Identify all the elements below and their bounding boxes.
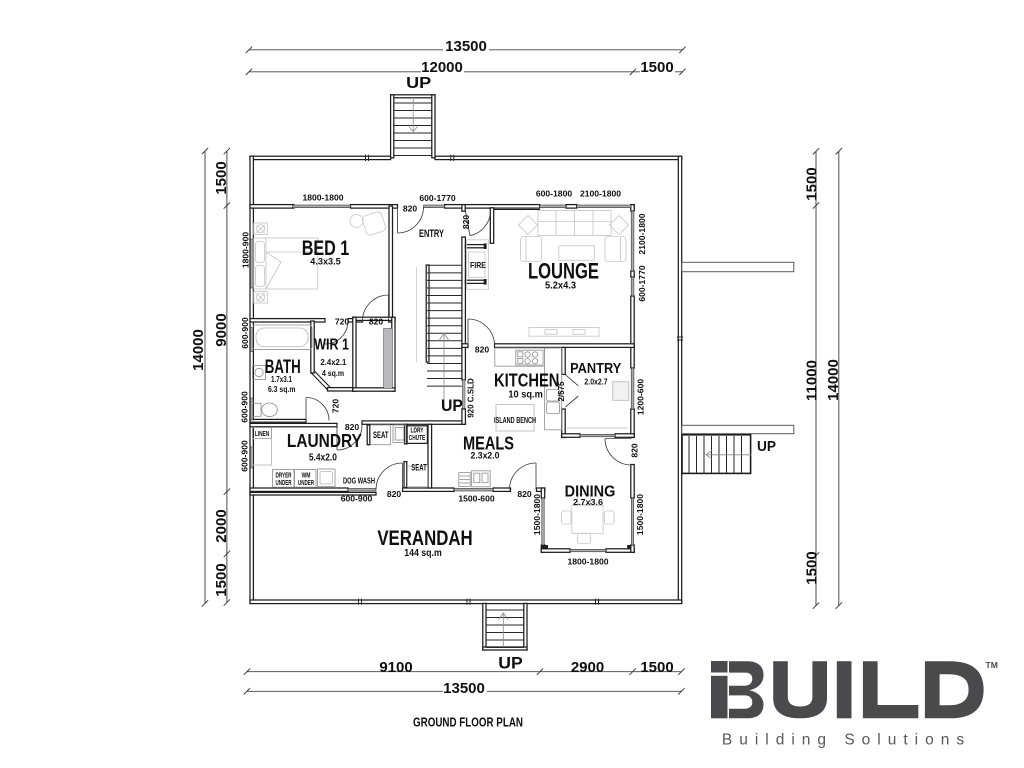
svg-text:1500: 1500: [213, 563, 230, 596]
svg-text:600-900: 600-900: [240, 317, 250, 349]
svg-text:11000: 11000: [804, 360, 821, 401]
svg-text:Building Solutions: Building Solutions: [722, 732, 971, 749]
svg-text:PANTRY: PANTRY: [570, 361, 621, 377]
svg-text:KITCHEN: KITCHEN: [494, 370, 559, 391]
svg-text:ENTRY: ENTRY: [419, 228, 444, 240]
svg-text:820: 820: [475, 345, 490, 355]
svg-text:820: 820: [403, 204, 418, 214]
svg-text:FIRE: FIRE: [470, 260, 486, 270]
svg-text:UP: UP: [498, 655, 523, 673]
svg-text:600-900: 600-900: [240, 391, 250, 423]
svg-text:LDRY: LDRY: [411, 428, 424, 435]
svg-text:1.7x3.1: 1.7x3.1: [271, 374, 292, 384]
svg-text:2.4x2.1: 2.4x2.1: [320, 357, 346, 367]
svg-text:13500: 13500: [443, 680, 485, 697]
svg-text:SEAT: SEAT: [373, 430, 389, 440]
svg-text:VERANDAH: VERANDAH: [377, 526, 472, 550]
svg-text:1500: 1500: [213, 161, 230, 194]
svg-text:CHUTE: CHUTE: [409, 435, 426, 442]
svg-text:2100-1800: 2100-1800: [580, 189, 621, 199]
svg-text:14000: 14000: [190, 329, 207, 371]
svg-text:6.3 sq.m: 6.3 sq.m: [268, 384, 296, 394]
svg-text:2100-1800: 2100-1800: [637, 213, 647, 254]
svg-text:144 sq.m: 144 sq.m: [404, 548, 442, 559]
svg-text:600-1800: 600-1800: [536, 189, 573, 199]
svg-text:1500-600: 1500-600: [458, 494, 495, 504]
svg-text:LAUNDRY: LAUNDRY: [287, 431, 362, 451]
svg-text:1500: 1500: [804, 167, 821, 200]
svg-text:600-1770: 600-1770: [419, 193, 456, 203]
svg-text:5.4x2.0: 5.4x2.0: [309, 453, 337, 464]
svg-text:1500-1800: 1500-1800: [635, 494, 645, 535]
svg-text:WM: WM: [302, 473, 311, 480]
svg-text:820: 820: [387, 489, 402, 499]
svg-text:1800-1800: 1800-1800: [567, 557, 608, 567]
svg-text:1800-900: 1800-900: [241, 232, 251, 269]
svg-text:SEAT: SEAT: [411, 463, 427, 473]
svg-text:820: 820: [630, 443, 640, 458]
svg-text:600-900: 600-900: [240, 440, 250, 472]
svg-text:1500-1800: 1500-1800: [532, 494, 542, 535]
svg-text:1500: 1500: [640, 659, 673, 676]
svg-text:1800-1800: 1800-1800: [302, 193, 343, 203]
svg-text:TM: TM: [986, 660, 998, 670]
svg-text:9100: 9100: [379, 659, 412, 676]
svg-text:1200-600: 1200-600: [636, 379, 646, 416]
svg-text:DRYER: DRYER: [276, 473, 292, 480]
svg-text:4.3x3.5: 4.3x3.5: [310, 257, 341, 268]
svg-text:2000: 2000: [213, 509, 230, 542]
svg-text:UNDER: UNDER: [298, 480, 314, 487]
svg-text:UNDER: UNDER: [276, 480, 292, 487]
svg-text:820: 820: [369, 317, 384, 327]
svg-text:820: 820: [461, 215, 471, 230]
svg-text:LINEN: LINEN: [255, 429, 269, 438]
svg-text:920 C.SLD: 920 C.SLD: [467, 378, 476, 418]
svg-text:9000: 9000: [213, 313, 230, 346]
svg-text:UP: UP: [757, 439, 776, 455]
svg-text:WIR 1: WIR 1: [314, 337, 349, 354]
svg-text:600-900: 600-900: [341, 494, 373, 504]
svg-text:2.3x2.0: 2.3x2.0: [471, 450, 500, 460]
svg-text:2.0x2.7: 2.0x2.7: [584, 376, 607, 386]
svg-text:12000: 12000: [421, 59, 463, 76]
svg-text:1500: 1500: [804, 551, 821, 584]
svg-text:UP: UP: [406, 75, 431, 92]
svg-text:820: 820: [517, 489, 532, 499]
svg-text:GROUND FLOOR PLAN: GROUND FLOOR PLAN: [413, 716, 523, 730]
svg-text:2900: 2900: [571, 659, 604, 676]
svg-text:720: 720: [331, 399, 341, 414]
svg-text:4 sq.m: 4 sq.m: [322, 368, 344, 378]
svg-text:820: 820: [345, 422, 360, 432]
svg-text:600-1770: 600-1770: [637, 265, 647, 302]
svg-text:13500: 13500: [445, 38, 487, 55]
svg-text:DOG WASH: DOG WASH: [343, 476, 375, 486]
svg-text:10 sq.m: 10 sq.m: [508, 390, 542, 401]
svg-text:5.2x4.3: 5.2x4.3: [545, 281, 576, 292]
svg-text:2/575: 2/575: [557, 381, 566, 402]
svg-text:2.7x3.6: 2.7x3.6: [573, 497, 603, 507]
svg-text:1500: 1500: [640, 59, 673, 76]
svg-text:ISLAND BENCH: ISLAND BENCH: [494, 416, 536, 425]
svg-text:UP: UP: [441, 396, 463, 415]
svg-text:14000: 14000: [825, 359, 842, 401]
svg-text:720: 720: [335, 317, 350, 327]
